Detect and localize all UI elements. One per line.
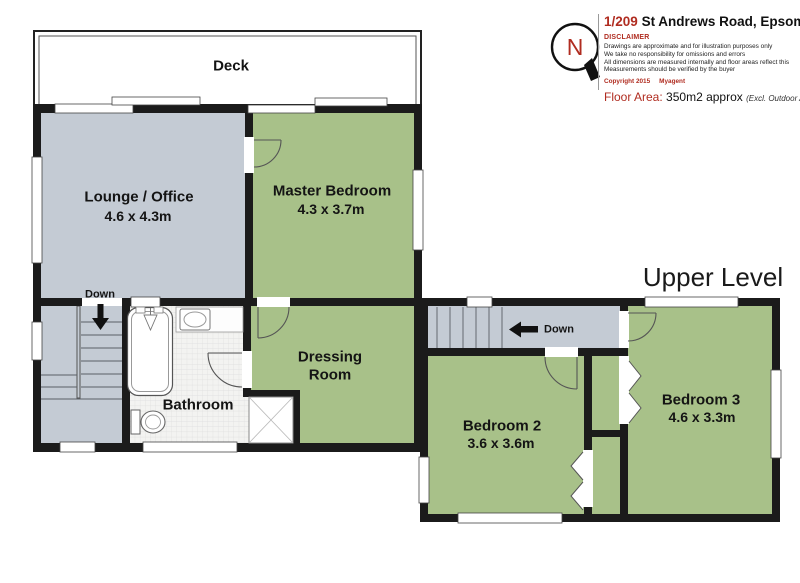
bedroom3-top-window [645, 297, 738, 307]
bathroom-label: Bathroom [163, 398, 234, 413]
bedroom3-right-window [771, 370, 781, 458]
bedroom3-label: Bedroom 3 [662, 393, 740, 408]
floor-area-line: Floor Area: 350m2 approx (Excl. Outdoor … [604, 90, 799, 104]
lounge-dims: 4.6 x 4.3m [105, 209, 172, 223]
copyright-agency: Myagent [659, 78, 685, 85]
master-slider-gap [248, 105, 315, 113]
floor-area-note: (Excl. Outdoor Areas) [746, 94, 800, 103]
disclaimer-line-2: We take no responsibility for omissions … [604, 51, 799, 59]
header-divider [598, 14, 599, 90]
bedroom2-label: Bedroom 2 [463, 419, 541, 434]
north-letter: N [567, 34, 584, 60]
disclaimer-line-4: Measurements should be verified by the b… [604, 66, 799, 74]
address-street: St Andrews Road, Epsom [642, 14, 800, 29]
lounge-label: Lounge / Office [84, 190, 193, 205]
bedroom2-bottom-window [458, 513, 562, 523]
lounge-window [32, 157, 42, 263]
down-label-right: Down [544, 325, 574, 336]
bathtub [128, 307, 173, 396]
master-slider-panel [315, 98, 387, 106]
dressing-label-2: Room [309, 368, 352, 383]
bathroom-window [143, 442, 237, 452]
bedroom3-dims: 4.6 x 3.3m [669, 410, 736, 424]
floor-area-label: Floor Area: [604, 90, 663, 104]
disclaimer-line-1: Drawings are approximate and for illustr… [604, 43, 799, 51]
closet-bottom-floor [592, 437, 620, 514]
copyright-line: Copyright 2015Myagent [604, 78, 799, 85]
down-label-left: Down [85, 290, 115, 301]
level-title: Upper Level [643, 264, 783, 290]
bedroom2-dims: 3.6 x 3.6m [468, 436, 535, 450]
master-label: Master Bedroom [273, 184, 391, 199]
dressing-label-1: Dressing [298, 350, 362, 365]
toilet [131, 410, 165, 434]
floor-plan-page: N 1/209 St Andrews Road, Epsom DISCLAIME… [0, 0, 800, 583]
landing-window [60, 442, 95, 452]
master-dims: 4.3 x 3.7m [298, 202, 365, 216]
vanity-sink [176, 307, 243, 332]
floor-area-value: 350m2 approx [666, 90, 743, 104]
bedroom2-left-window [419, 457, 429, 503]
stairwell-window [32, 322, 42, 360]
bathroom-top-opening [131, 297, 160, 307]
title-block: 1/209 St Andrews Road, Epsom DISCLAIMER … [604, 14, 799, 104]
stairwell-floor [41, 306, 122, 443]
closet-top-floor [592, 356, 620, 430]
address-line: 1/209 St Andrews Road, Epsom [604, 14, 799, 29]
lounge-floor [41, 113, 245, 298]
deck-label: Deck [213, 59, 249, 74]
shower [249, 397, 293, 443]
disclaimer-title: DISCLAIMER [604, 34, 799, 41]
address-number: 1/209 [604, 14, 638, 29]
copyright-text: Copyright 2015 [604, 78, 650, 85]
right-stairs-window [467, 297, 492, 307]
disclaimer-line-3: All dimensions are measured internally a… [604, 59, 799, 67]
compass: N [552, 24, 600, 81]
lounge-slider-panel [112, 97, 200, 105]
master-window [413, 170, 423, 250]
